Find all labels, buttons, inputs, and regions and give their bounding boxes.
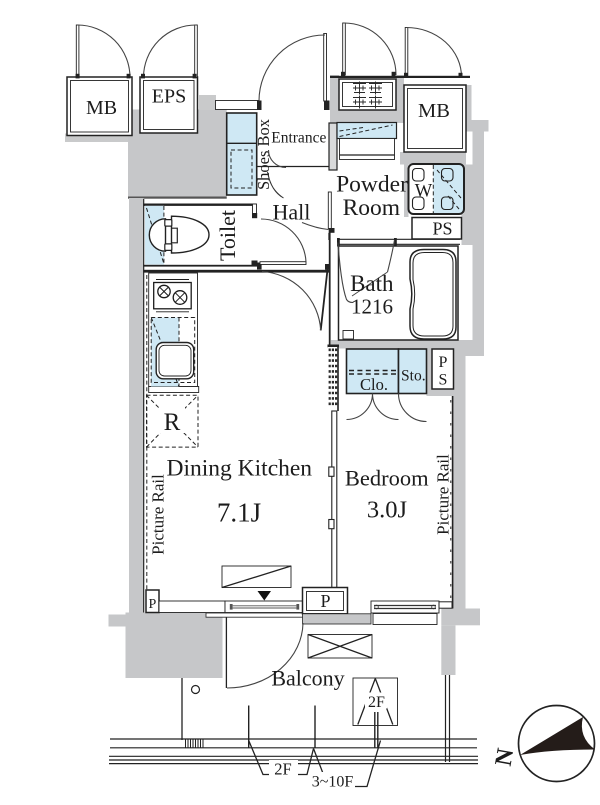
svg-text:S: S [439, 372, 448, 389]
svg-text:P: P [439, 354, 448, 371]
svg-text:Room: Room [343, 195, 400, 221]
svg-text:Balcony: Balcony [271, 666, 344, 691]
svg-text:Powder: Powder [336, 171, 408, 197]
svg-text:Clo.: Clo. [360, 375, 388, 394]
svg-text:Entrance: Entrance [271, 130, 326, 147]
svg-text:2F: 2F [274, 760, 291, 779]
svg-text:W: W [415, 182, 433, 202]
svg-text:1216: 1216 [351, 295, 393, 319]
svg-text:7.1J: 7.1J [217, 498, 261, 528]
svg-text:EPS: EPS [152, 86, 186, 108]
svg-text:MB: MB [86, 97, 117, 119]
svg-text:Hall: Hall [272, 200, 310, 225]
svg-text:PS: PS [432, 219, 452, 239]
svg-text:MB: MB [418, 100, 450, 122]
svg-text:Picture Rail: Picture Rail [434, 454, 453, 535]
svg-text:P: P [149, 597, 157, 612]
svg-text:2F: 2F [368, 694, 385, 711]
svg-text:Toilet: Toilet [215, 210, 240, 261]
svg-text:Picture Rail: Picture Rail [149, 474, 168, 555]
svg-text:Sto.: Sto. [401, 368, 426, 385]
svg-text:Bath: Bath [350, 271, 394, 296]
svg-text:3.0J: 3.0J [367, 497, 408, 524]
svg-text:Bedroom: Bedroom [345, 466, 429, 491]
svg-text:R: R [164, 409, 181, 436]
svg-text:3~10F: 3~10F [312, 774, 354, 791]
svg-text:Shoes Box: Shoes Box [254, 118, 273, 190]
svg-text:P: P [320, 591, 330, 611]
svg-text:Dining Kitchen: Dining Kitchen [167, 455, 313, 481]
